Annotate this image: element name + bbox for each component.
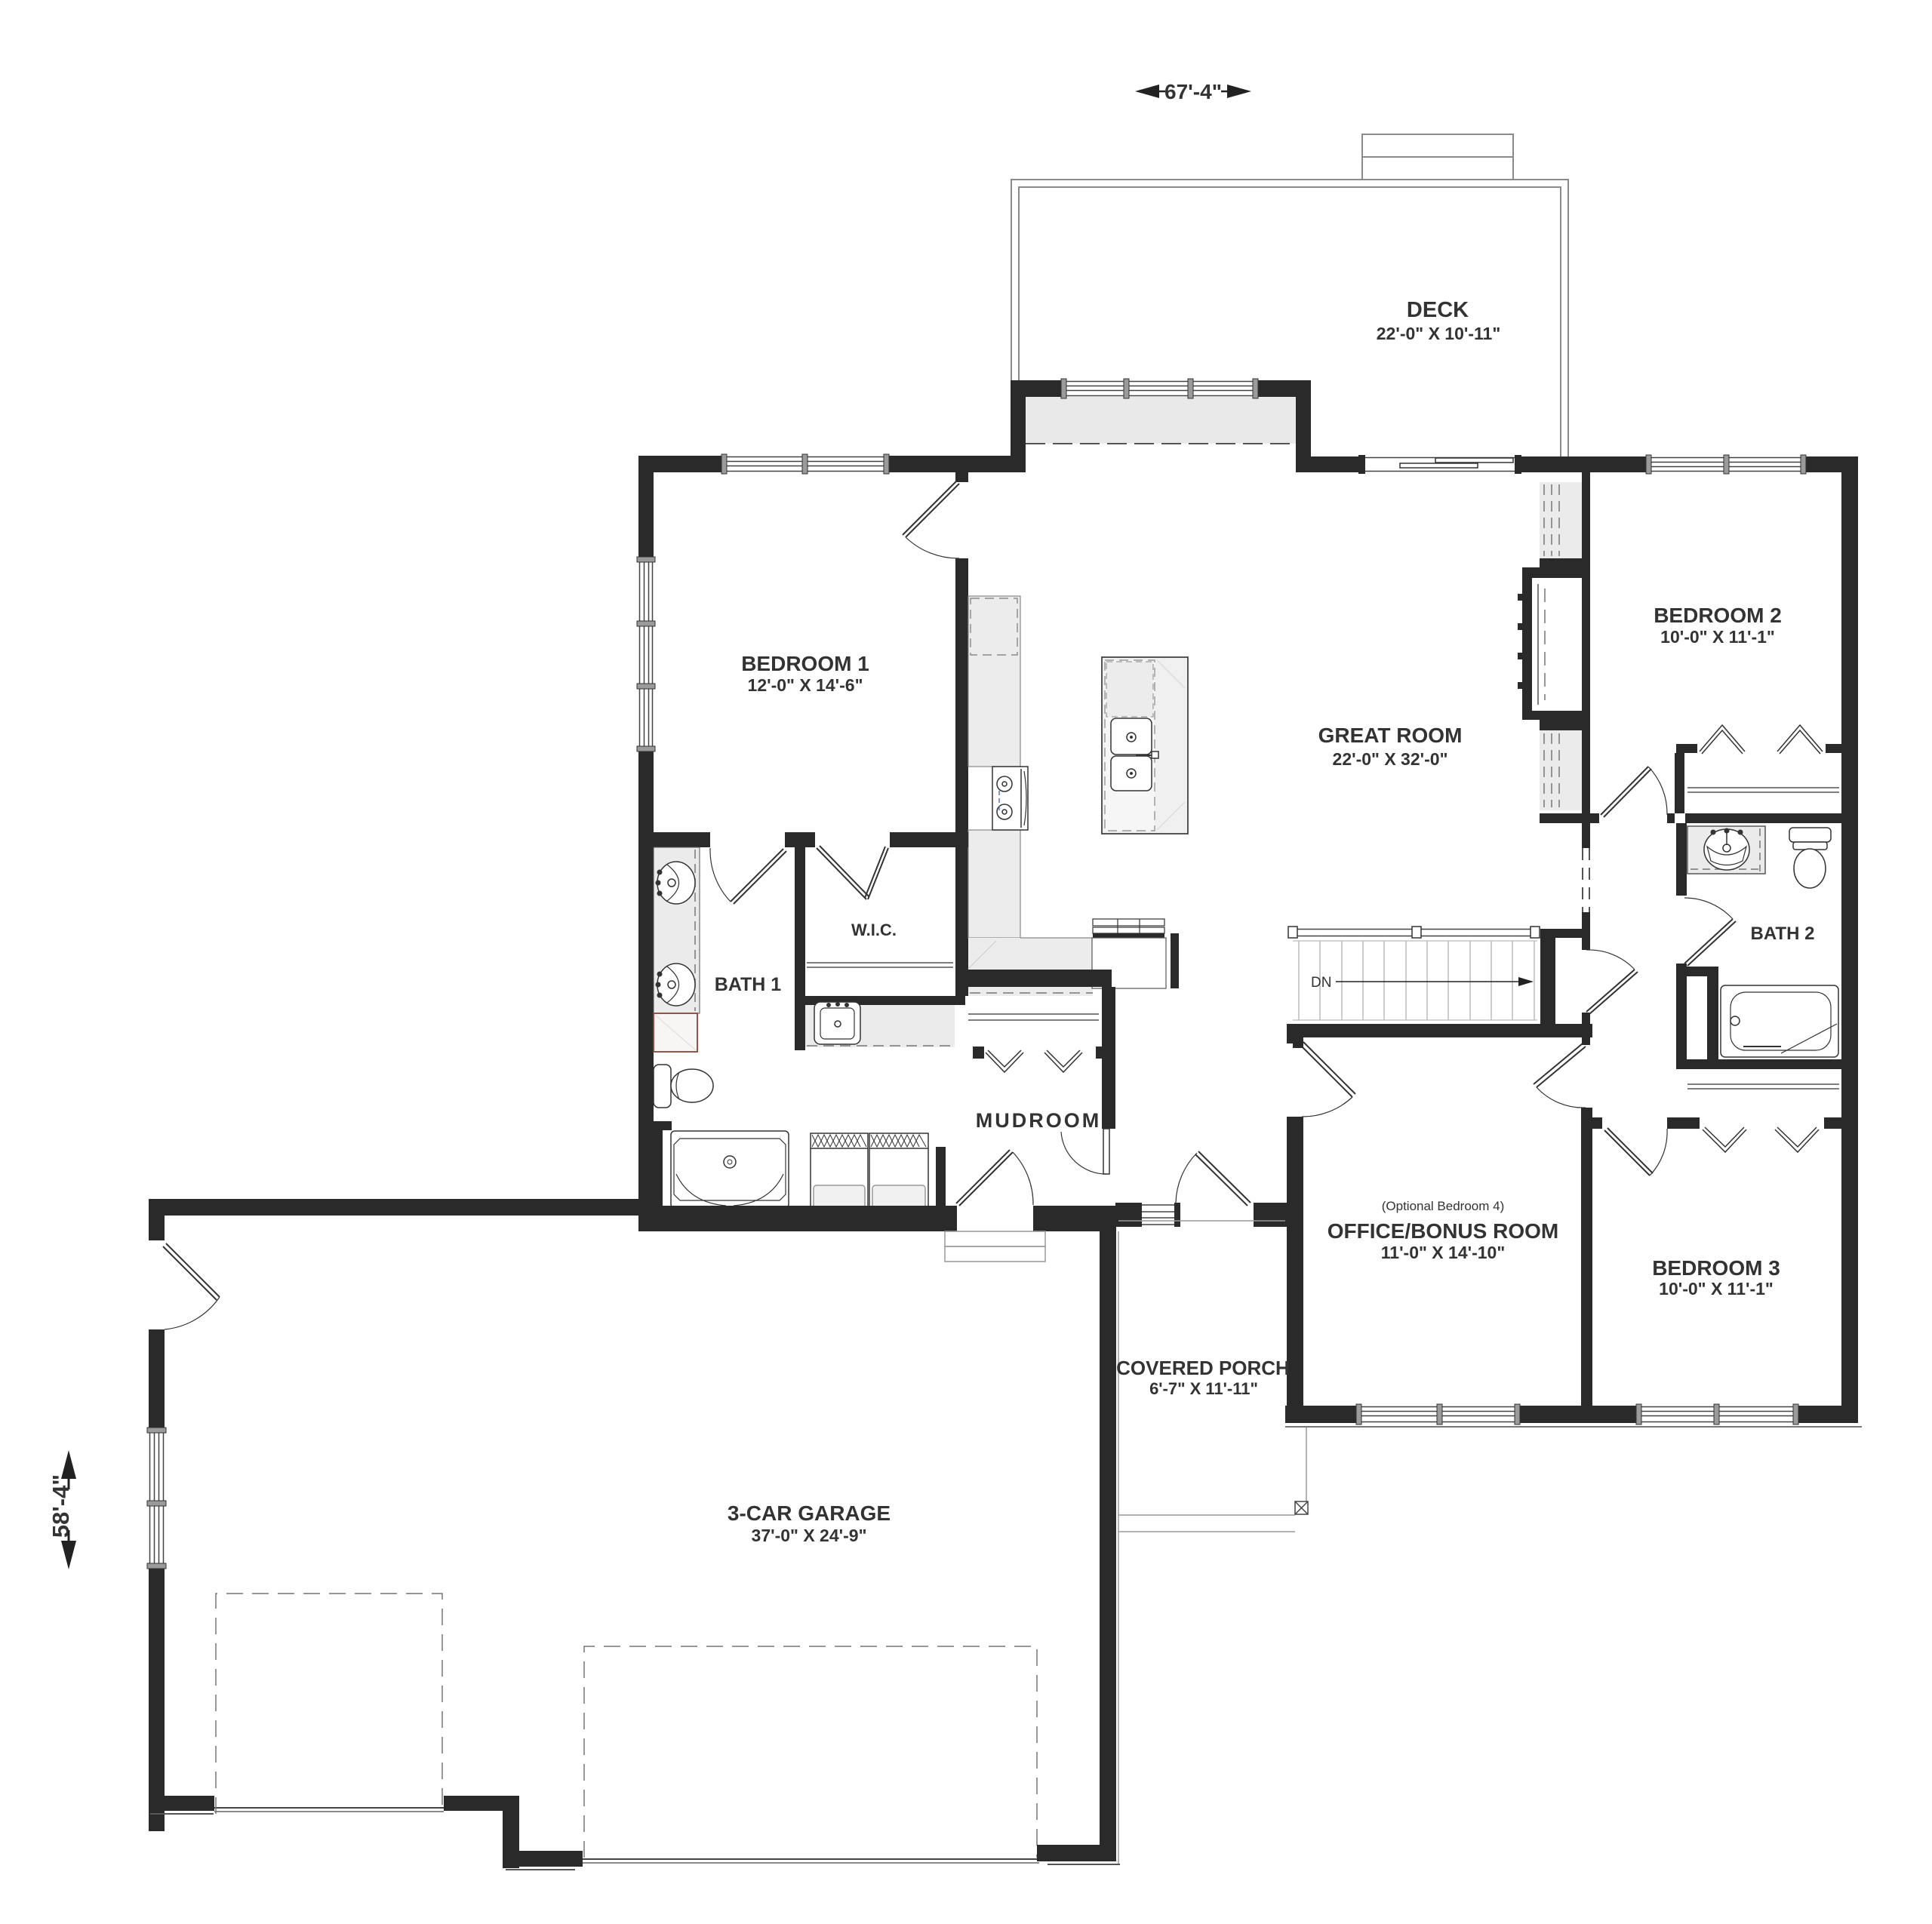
svg-text:6'-7" X 11'-11": 6'-7" X 11'-11" xyxy=(1149,1379,1258,1398)
svg-text:COVERED PORCH: COVERED PORCH xyxy=(1116,1357,1290,1379)
svg-text:10'-0" X 11'-1": 10'-0" X 11'-1" xyxy=(1660,627,1775,647)
svg-text:W.I.C.: W.I.C. xyxy=(851,921,897,939)
svg-text:22'-0" X 10'-11": 22'-0" X 10'-11" xyxy=(1377,324,1500,343)
svg-text:12'-0" X 14'-6": 12'-0" X 14'-6" xyxy=(748,675,863,695)
svg-text:11'-0" X 14'-10": 11'-0" X 14'-10" xyxy=(1381,1243,1505,1262)
svg-text:(Optional Bedroom 4): (Optional Bedroom 4) xyxy=(1382,1199,1505,1213)
svg-text:BATH 1: BATH 1 xyxy=(715,974,782,995)
svg-text:BEDROOM 3: BEDROOM 3 xyxy=(1652,1256,1780,1280)
svg-text:BEDROOM 1: BEDROOM 1 xyxy=(741,652,869,675)
svg-text:22'-0" X 32'-0": 22'-0" X 32'-0" xyxy=(1333,749,1448,769)
svg-text:58'-4": 58'-4" xyxy=(48,1474,74,1538)
svg-text:MUDROOM: MUDROOM xyxy=(976,1109,1101,1132)
svg-text:BATH 2: BATH 2 xyxy=(1751,924,1815,944)
svg-text:DN: DN xyxy=(1311,975,1331,991)
svg-text:37'-0" X 24'-9": 37'-0" X 24'-9" xyxy=(752,1526,867,1545)
svg-text:3-CAR GARAGE: 3-CAR GARAGE xyxy=(728,1501,891,1525)
svg-text:OFFICE/BONUS ROOM: OFFICE/BONUS ROOM xyxy=(1327,1219,1558,1243)
svg-text:GREAT ROOM: GREAT ROOM xyxy=(1318,724,1463,747)
svg-text:10'-0" X 11'-1": 10'-0" X 11'-1" xyxy=(1659,1279,1774,1299)
svg-text:67'-4": 67'-4" xyxy=(1164,80,1222,103)
svg-text:BEDROOM 2: BEDROOM 2 xyxy=(1654,604,1782,627)
svg-text:DECK: DECK xyxy=(1407,298,1469,322)
